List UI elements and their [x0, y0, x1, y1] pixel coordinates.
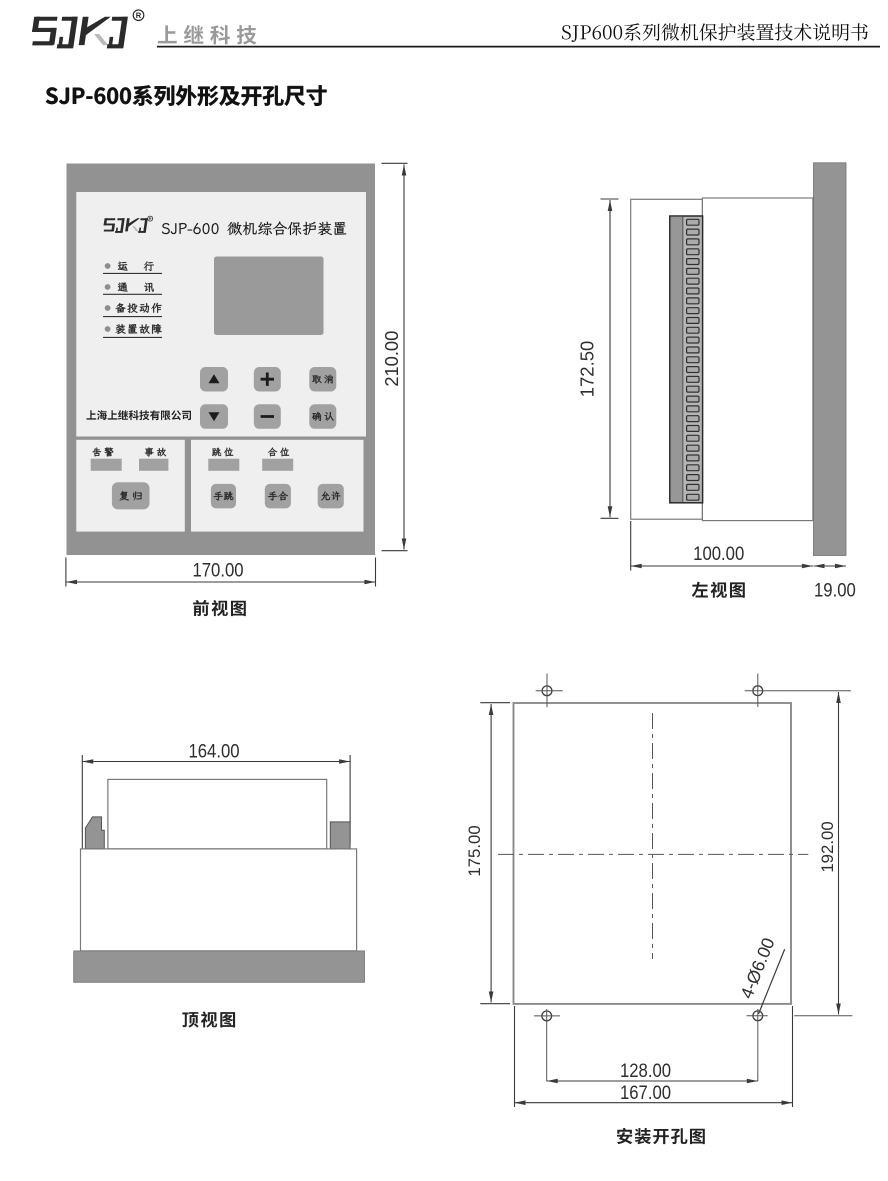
svg-text:19.00: 19.00: [814, 580, 856, 601]
svg-text:210.00: 210.00: [381, 331, 402, 387]
svg-text:164.00: 164.00: [188, 741, 239, 762]
svg-text:128.00: 128.00: [620, 1060, 671, 1081]
svg-text:172.50: 172.50: [577, 341, 598, 398]
svg-text:192.00: 192.00: [818, 821, 837, 872]
svg-text:175.00: 175.00: [465, 825, 484, 876]
svg-text:170.00: 170.00: [192, 560, 243, 581]
svg-text:100.00: 100.00: [693, 543, 744, 564]
svg-text:167.00: 167.00: [620, 1082, 671, 1103]
